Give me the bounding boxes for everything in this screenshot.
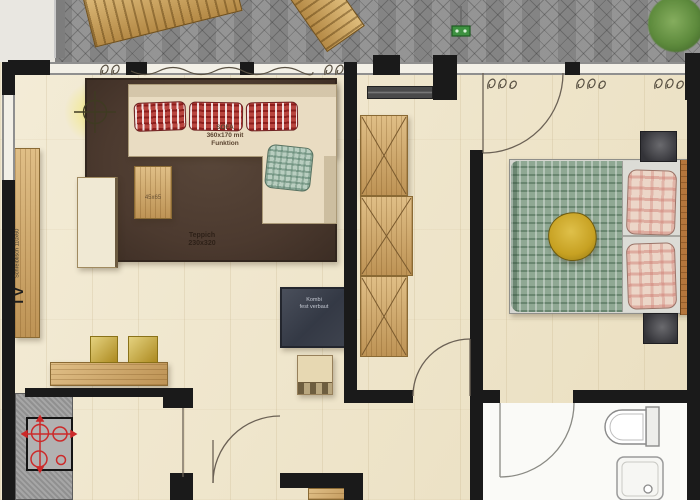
pillow-pink-2: [626, 242, 677, 310]
wall-segment: [240, 62, 254, 75]
window: [147, 62, 240, 75]
curtain-icon: [488, 79, 684, 89]
cabinet-label-line1: Kombi: [282, 297, 346, 304]
bathroom-floor: [483, 403, 687, 500]
stool-1: [90, 336, 118, 363]
floor-plan: SOFA 360x170 mit Funktion Teppich 230x32…: [0, 0, 700, 500]
desk-label: Schreibtisch 110x60: [15, 218, 22, 288]
window: [580, 62, 685, 75]
wall-bath-top: [573, 390, 687, 403]
door-arc-entrance: [213, 416, 280, 483]
window: [254, 62, 344, 75]
rug-label-line1: Teppich: [166, 232, 238, 240]
chest-drawer: [298, 382, 332, 394]
nightstand-1: [640, 131, 677, 162]
coffee-table: [134, 166, 172, 219]
wall-segment: [565, 62, 580, 75]
wall-hall-door: [357, 390, 413, 403]
window: [357, 62, 373, 75]
terrace-wall: [54, 0, 65, 58]
sun-lounger-2: [257, 0, 365, 52]
desk-label-line2: 110x60: [15, 229, 21, 247]
bed: [509, 159, 693, 314]
wall-right: [687, 100, 700, 500]
sofa-cushion-green: [264, 144, 314, 193]
sideboard: [77, 177, 118, 268]
window: [400, 62, 433, 75]
sofa-label: SOFA 360x170 mit Funktion: [183, 124, 267, 147]
desk-label-line1: Schreibtisch: [15, 248, 21, 278]
cooktop: [26, 417, 73, 471]
door-arc-bedroom: [483, 73, 563, 153]
sofa-label-line3: Funktion: [183, 140, 267, 148]
sofa-label-line1: SOFA: [183, 124, 267, 132]
wall-segment: [433, 55, 457, 100]
wall-bath-top: [470, 390, 500, 403]
sun-lounger-1: [81, 0, 242, 48]
rug-label-line2: 230x320: [166, 240, 238, 248]
wall-kitchen: [25, 388, 163, 397]
wall-segment: [126, 62, 147, 75]
wall-hall-bedroom: [470, 150, 483, 500]
sofa-label-line2: 360x170 mit: [183, 132, 267, 140]
window: [50, 62, 126, 75]
coffee-table-label: 45x65: [134, 195, 172, 202]
wardrobe-cell-2: [360, 196, 413, 276]
wardrobe-cell-3: [360, 276, 408, 357]
pillow-pink-1: [626, 169, 677, 236]
wall-pillar: [170, 473, 193, 500]
radiator: [367, 86, 433, 99]
cabinet-label-line2: fest verbaut: [282, 304, 346, 311]
wardrobe-cell-1: [360, 115, 408, 196]
window: [2, 95, 15, 180]
wall-left: [2, 62, 15, 95]
rug-label: Teppich 230x320: [166, 232, 238, 249]
window: [457, 62, 565, 75]
wall-segment: [685, 53, 700, 100]
wall-pillar: [163, 388, 193, 408]
wall-entry: [280, 473, 357, 488]
stool-2: [128, 336, 158, 363]
sofa-cushion-1: [134, 101, 187, 132]
hall-chest: [297, 355, 333, 395]
wall-segment: [373, 55, 400, 75]
door-arc-hall: [413, 339, 470, 396]
hall-cabinet-label: Kombi fest verbaut: [282, 297, 346, 310]
nightstand-2: [643, 313, 678, 344]
terrace-edge: [0, 0, 55, 62]
dining-table: [50, 362, 168, 386]
wall-left: [2, 180, 15, 500]
wall-living-hall: [344, 62, 357, 403]
terrace: [0, 0, 700, 62]
plant-icon: [648, 0, 700, 52]
bed-split-line: [623, 235, 680, 237]
